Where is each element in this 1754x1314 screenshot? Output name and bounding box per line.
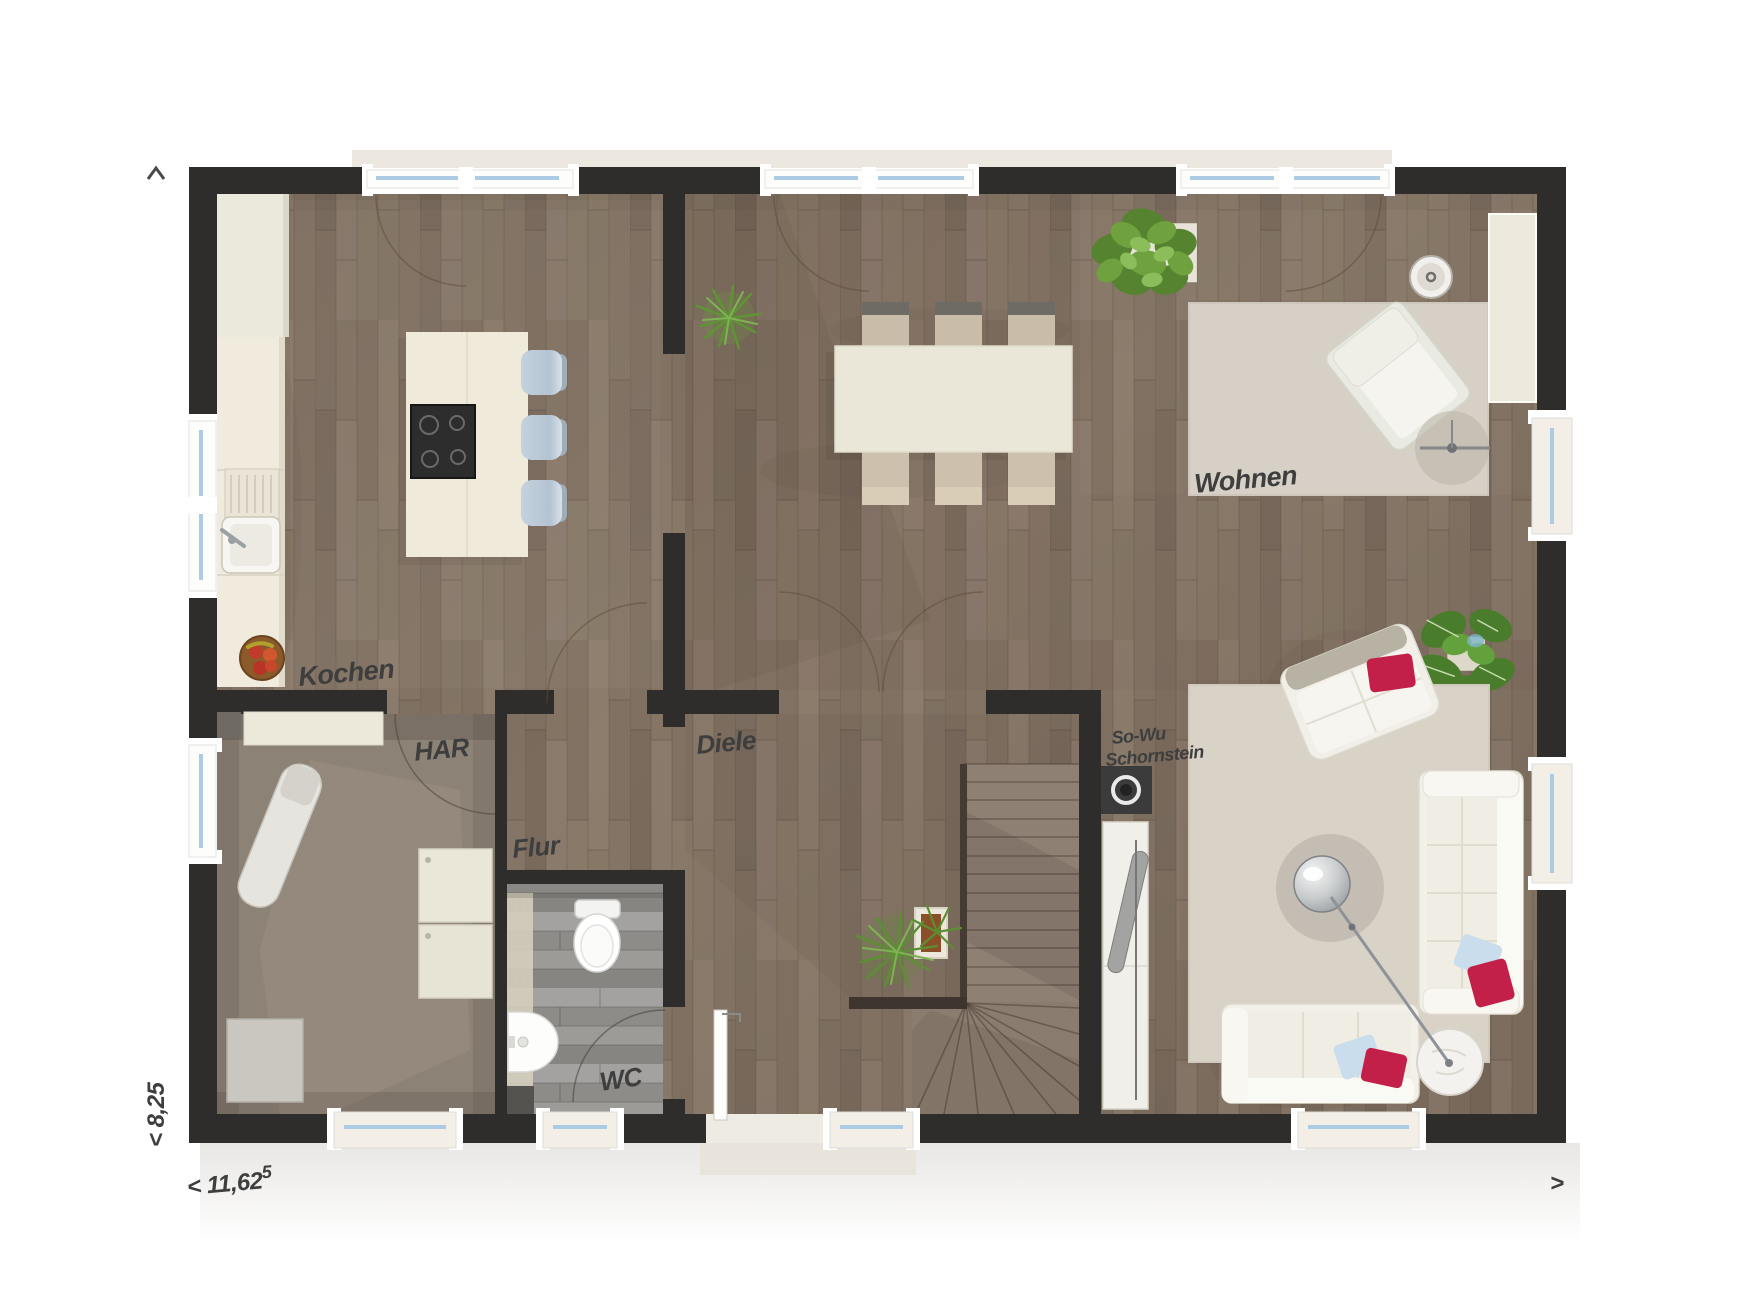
svg-text:HAR: HAR: [413, 732, 471, 767]
svg-text:< 8,25: < 8,25: [143, 1081, 170, 1147]
svg-text:WC: WC: [598, 1061, 646, 1097]
svg-text:Flur: Flur: [511, 830, 563, 864]
svg-text:>: >: [1550, 1170, 1564, 1197]
svg-text:Diele: Diele: [695, 725, 757, 760]
